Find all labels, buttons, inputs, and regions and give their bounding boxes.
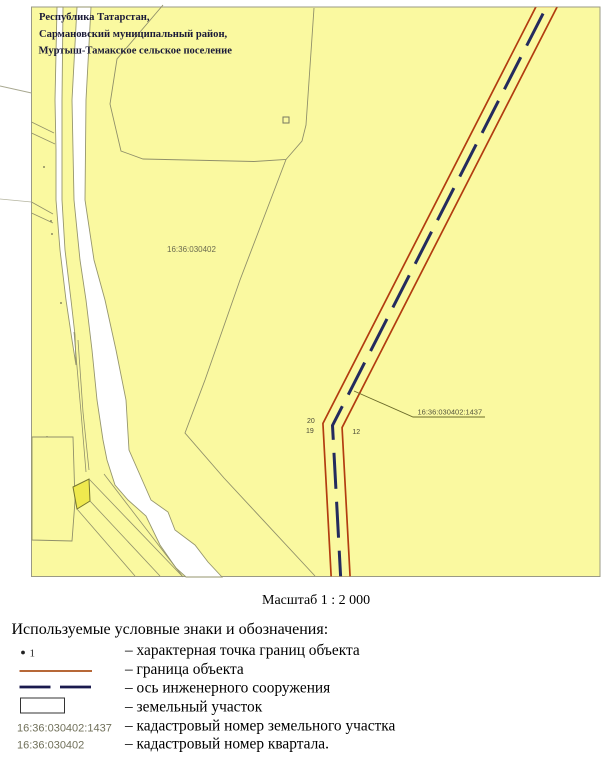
svg-text:1: 1 — [30, 648, 36, 660]
svg-text:Сармановский муниципальный рай: Сармановский муниципальный район, — [39, 29, 228, 40]
svg-text:Масштаб 1 : 2 000: Масштаб 1 : 2 000 — [262, 593, 370, 608]
svg-text:20: 20 — [307, 418, 315, 425]
svg-text:– кадастровый номер квартала.: – кадастровый номер квартала. — [124, 736, 329, 753]
svg-text:16:36:030402: 16:36:030402 — [17, 740, 84, 752]
svg-text:Используемые условные знаки и: Используемые условные знаки и обозначени… — [12, 621, 329, 638]
svg-text:Республика Татарстан,: Республика Татарстан, — [39, 12, 150, 23]
svg-text:– граница объекта: – граница объекта — [124, 661, 244, 678]
svg-text:16:36:030402:1437: 16:36:030402:1437 — [17, 723, 112, 735]
svg-text:16:36:030402:1437: 16:36:030402:1437 — [418, 408, 483, 417]
svg-text:Муртыш-Тамакское сельское посе: Муртыш-Тамакское сельское поселение — [39, 45, 233, 56]
svg-text:16:36:030402: 16:36:030402 — [167, 245, 216, 254]
svg-text:– земельный участок: – земельный участок — [124, 699, 263, 716]
svg-text:12: 12 — [352, 429, 360, 436]
svg-text:19: 19 — [306, 428, 314, 435]
svg-text:– ось инженерного сооружения: – ось инженерного сооружения — [124, 680, 330, 697]
svg-text:– характерная точка границ объ: – характерная точка границ объекта — [124, 642, 360, 659]
svg-text:– кадастровый номер земельного: – кадастровый номер земельного участка — [124, 718, 396, 735]
